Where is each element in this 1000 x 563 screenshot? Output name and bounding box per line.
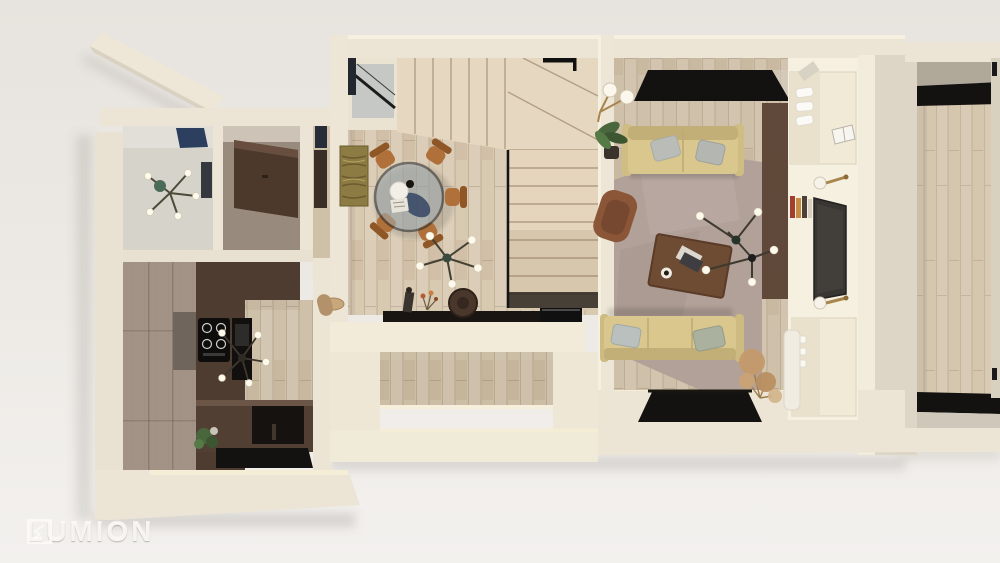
bedroom-top-left (123, 126, 213, 250)
tall-vase (784, 330, 800, 410)
plate (390, 182, 408, 200)
wall-kitchen-bottom (95, 470, 360, 520)
skylight-window (176, 128, 208, 148)
pillow (610, 324, 641, 349)
towels (796, 87, 814, 98)
floorplan-canvas (0, 0, 1000, 563)
cooktop (198, 318, 230, 362)
dark-floor-panel (762, 103, 788, 299)
wall-art (340, 146, 368, 206)
console-top (790, 61, 856, 164)
book-stack (790, 196, 812, 218)
dining-chair (445, 186, 467, 208)
window-opening (638, 392, 762, 422)
sink (252, 406, 304, 444)
stair-upper-flight (397, 58, 598, 150)
dining-table (375, 163, 443, 231)
console-bottom (792, 318, 856, 416)
island-counter (330, 308, 598, 462)
sofa (622, 124, 744, 178)
side-room (905, 42, 1000, 452)
tv (814, 198, 846, 300)
magazine (390, 198, 409, 213)
window-opening (917, 392, 1000, 414)
lumion-logo-icon (26, 518, 53, 545)
floorplan-render: LUMION (0, 0, 1000, 563)
kitchen (123, 258, 332, 480)
cup (406, 180, 414, 188)
window-opening (634, 70, 790, 101)
sofa (600, 308, 744, 362)
closet-room (223, 112, 330, 258)
window-opening (917, 82, 1000, 106)
wall-left (95, 132, 123, 520)
window-opening (216, 448, 313, 468)
living-room (590, 58, 858, 422)
watermark: LUMION (26, 518, 154, 546)
